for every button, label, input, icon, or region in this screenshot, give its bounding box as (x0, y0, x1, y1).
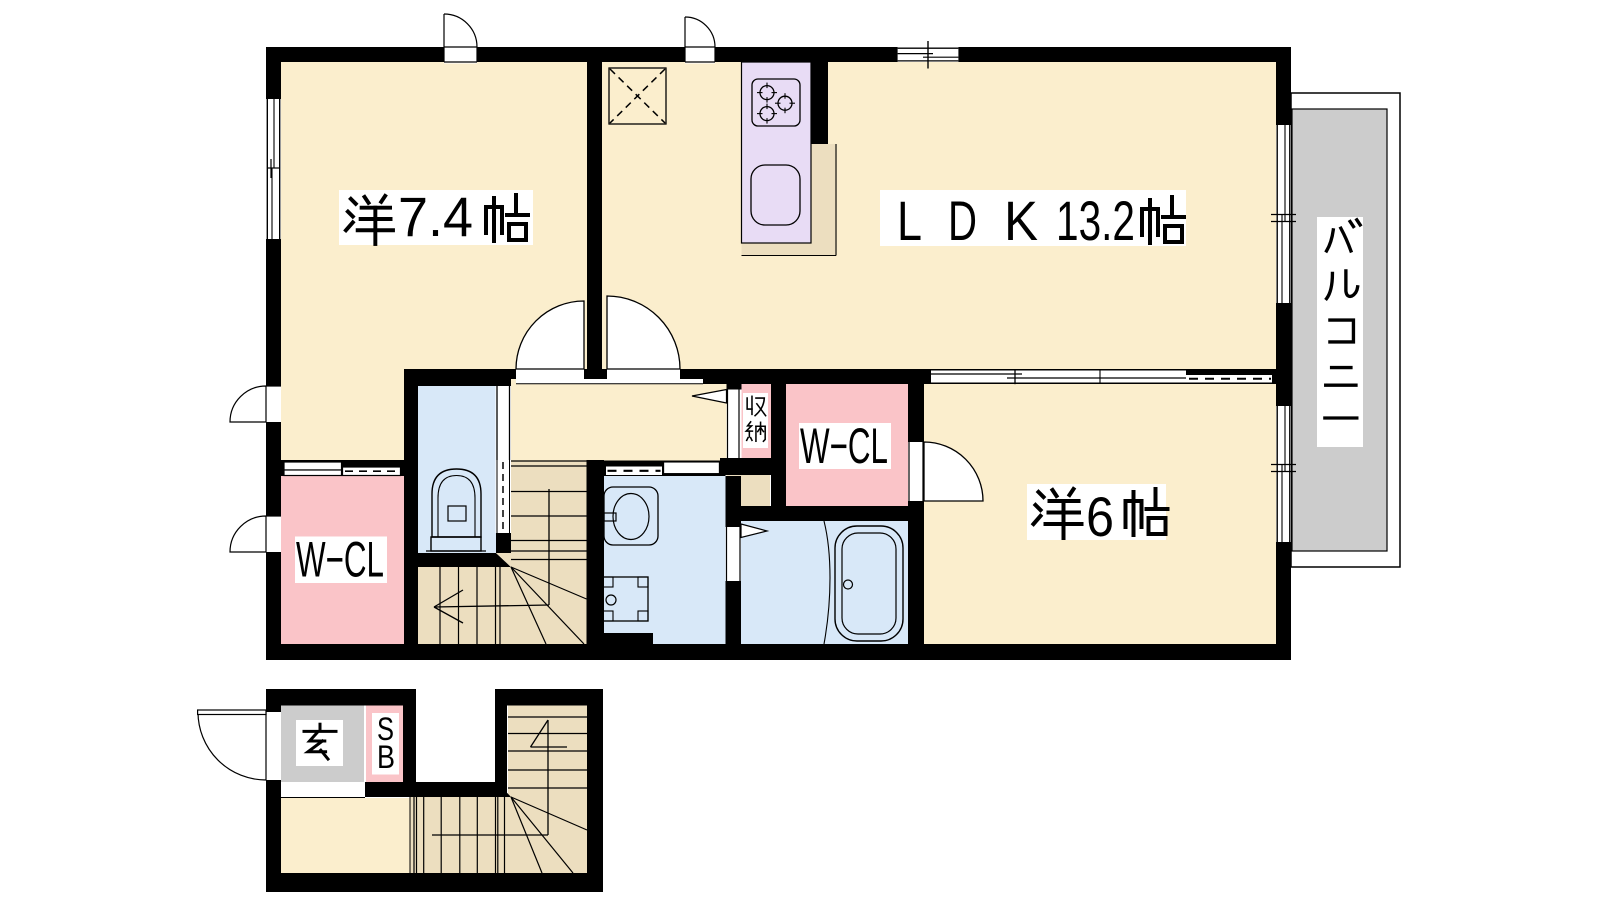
svg-text:W−CL: W−CL (296, 532, 384, 588)
svg-text:D: D (948, 189, 977, 252)
svg-text:6: 6 (1086, 485, 1114, 548)
svg-text:B: B (377, 739, 395, 775)
svg-text:7.4: 7.4 (398, 185, 473, 248)
svg-text:13.2: 13.2 (1056, 189, 1135, 252)
svg-text:L: L (897, 189, 922, 252)
svg-text:W−CL: W−CL (800, 418, 888, 474)
svg-text:K: K (1004, 189, 1038, 252)
